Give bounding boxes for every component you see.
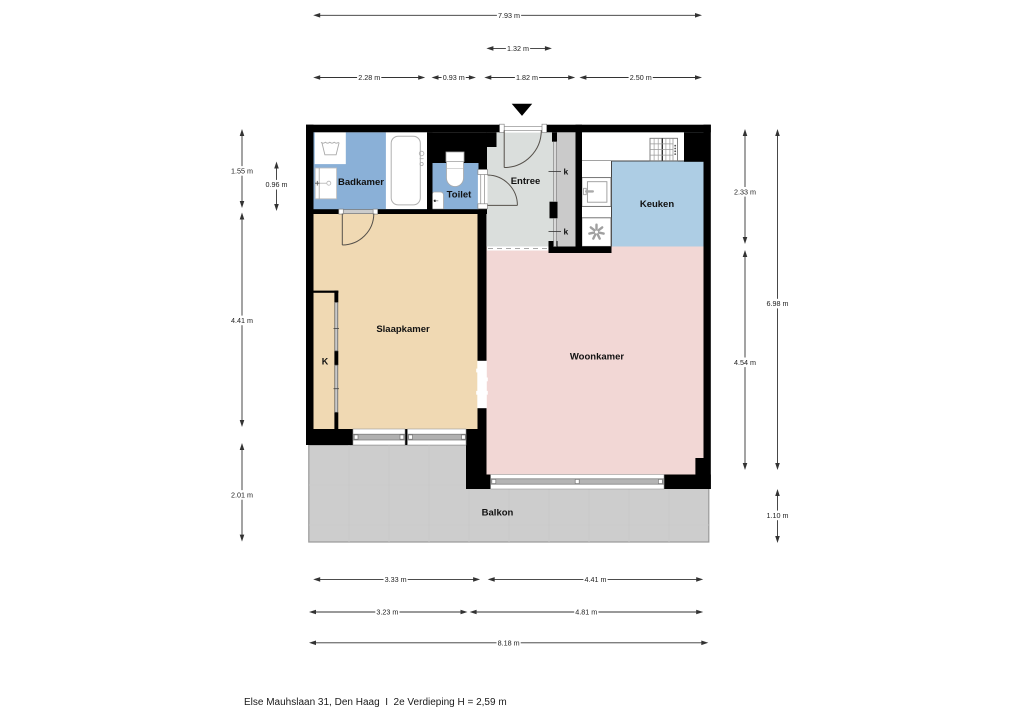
svg-text:1.55 m: 1.55 m (231, 166, 253, 175)
svg-text:6.98 m: 6.98 m (767, 299, 789, 308)
svg-text:Woonkamer: Woonkamer (570, 352, 625, 363)
svg-text:0.96 m: 0.96 m (266, 180, 288, 189)
svg-text:7.93 m: 7.93 m (498, 11, 520, 20)
svg-text:2.50 m: 2.50 m (630, 73, 652, 82)
svg-text:3.23 m: 3.23 m (376, 608, 398, 617)
svg-text:Balkon: Balkon (482, 508, 514, 519)
svg-text:1.10 m: 1.10 m (767, 511, 789, 520)
svg-text:k: k (564, 167, 569, 177)
svg-text:1.82 m: 1.82 m (516, 73, 538, 82)
svg-text:4.41 m: 4.41 m (585, 575, 607, 584)
svg-text:Badkamer: Badkamer (338, 177, 384, 188)
svg-text:2.28 m: 2.28 m (358, 73, 380, 82)
svg-text:1.32 m: 1.32 m (507, 44, 529, 53)
svg-text:Keuken: Keuken (640, 199, 675, 210)
svg-text:Else Mauhslaan 31, Den Haag I: Else Mauhslaan 31, Den Haag I 2e Verdiep… (244, 697, 507, 708)
svg-text:8.18 m: 8.18 m (498, 638, 520, 647)
svg-text:2.01 m: 2.01 m (231, 490, 253, 499)
svg-text:Toilet: Toilet (447, 190, 472, 201)
svg-text:Entree: Entree (511, 176, 541, 187)
svg-text:Slaapkamer: Slaapkamer (376, 324, 430, 335)
svg-text:4.81 m: 4.81 m (575, 608, 597, 617)
svg-text:0.93 m: 0.93 m (443, 73, 465, 82)
svg-text:k: k (564, 227, 569, 237)
svg-text:4.54 m: 4.54 m (734, 358, 756, 367)
svg-text:2.33 m: 2.33 m (734, 187, 756, 196)
svg-text:K: K (322, 357, 329, 367)
svg-text:3.33 m: 3.33 m (385, 575, 407, 584)
svg-text:4.41 m: 4.41 m (231, 316, 253, 325)
